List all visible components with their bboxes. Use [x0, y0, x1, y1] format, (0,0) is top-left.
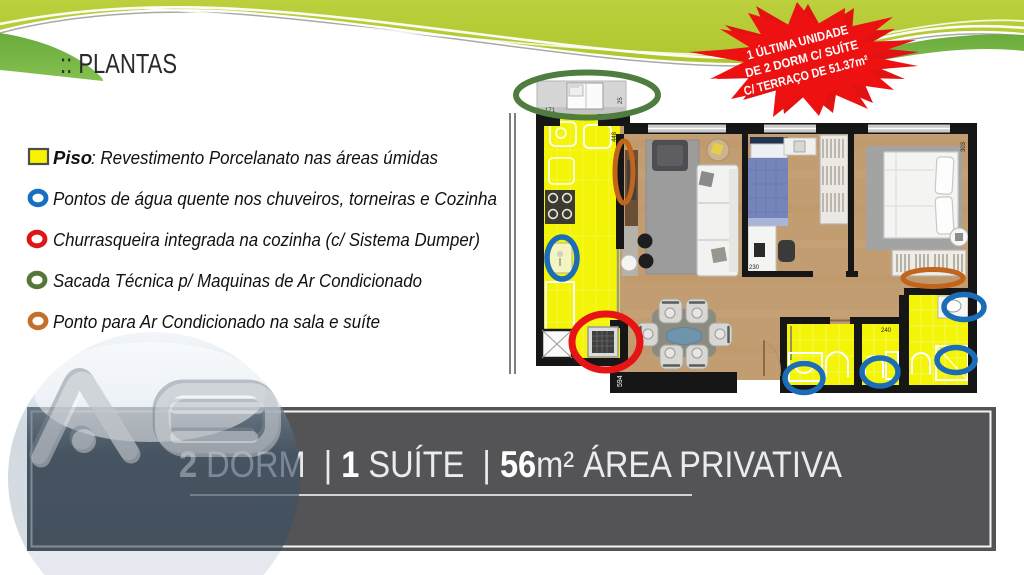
svg-text:303: 303: [961, 141, 967, 152]
svg-text:Churrasqueira integrada na coz: Churrasqueira integrada na cozinha (c/ S…: [53, 229, 480, 250]
svg-text:: Revestimento Porcelanato nas: : Revestimento Porcelanato nas áreas úmi…: [91, 147, 438, 168]
svg-text:230: 230: [749, 265, 760, 271]
svg-text:594: 594: [617, 375, 624, 387]
svg-text:Pontos de água quente nos chuv: Pontos de água quente nos chuveiros, tor…: [53, 188, 497, 209]
svg-text:25: 25: [618, 97, 624, 104]
svg-text:240: 240: [881, 328, 892, 334]
svg-text:Ponto para Ar Condicionado na: Ponto para Ar Condicionado na sala e suí…: [53, 311, 380, 332]
svg-text:Piso: Piso: [53, 147, 92, 168]
svg-text:Sacada Técnica p/ Maquinas de: Sacada Técnica p/ Maquinas de Ar Condici…: [53, 270, 422, 291]
svg-text::: PLANTAS: :: PLANTAS: [60, 48, 177, 79]
